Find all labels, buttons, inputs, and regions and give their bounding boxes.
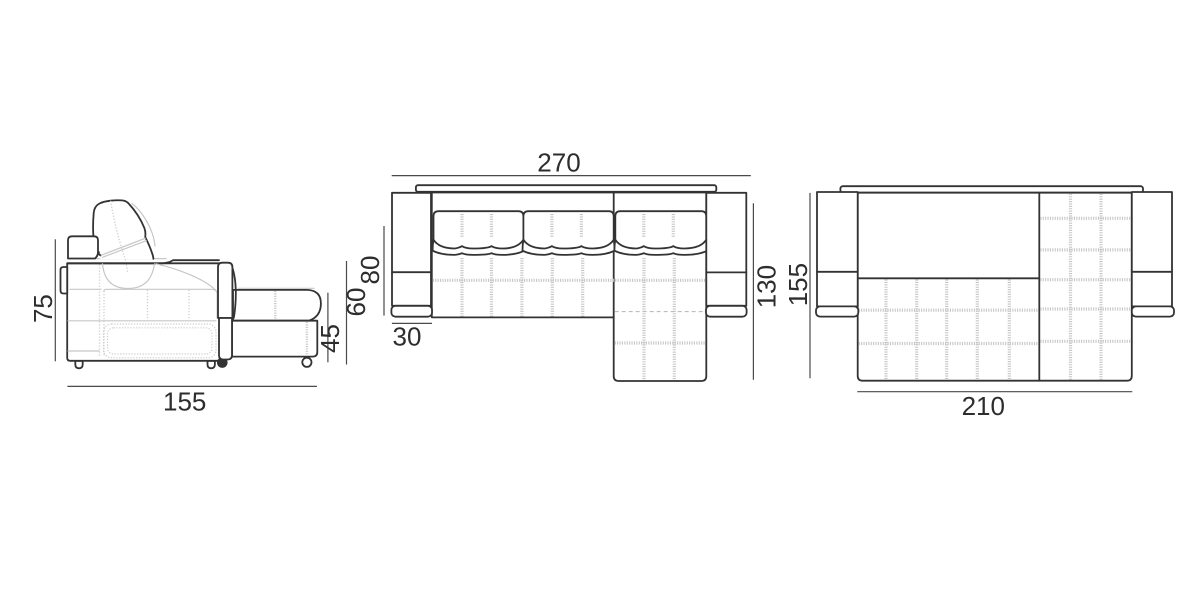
svg-text:155: 155 [783, 263, 813, 306]
svg-text:155: 155 [163, 386, 206, 416]
svg-text:130: 130 [751, 265, 781, 308]
svg-text:210: 210 [962, 391, 1005, 421]
svg-text:30: 30 [393, 321, 422, 351]
svg-text:75: 75 [28, 294, 58, 323]
svg-text:270: 270 [537, 147, 580, 177]
svg-text:60: 60 [341, 288, 371, 317]
svg-text:45: 45 [315, 324, 345, 353]
svg-text:80: 80 [355, 256, 385, 285]
